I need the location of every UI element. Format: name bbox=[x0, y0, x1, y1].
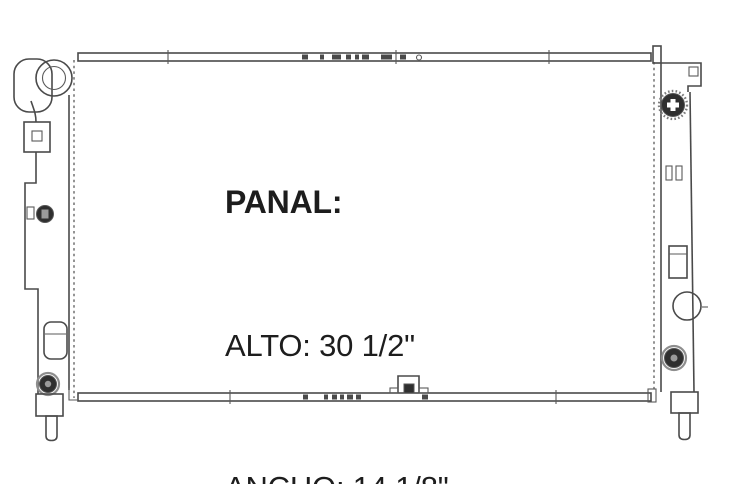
left-side-outline bbox=[25, 152, 38, 394]
spec-heading: PANAL: bbox=[225, 179, 491, 227]
overflow-fitting bbox=[669, 246, 687, 278]
spec-line-ancho: ANCHO: 14 1/8" bbox=[225, 464, 491, 484]
vent-slots bbox=[666, 166, 682, 180]
lower-bolt-left bbox=[37, 373, 59, 395]
spec-panel: PANAL: ALTO: 30 1/2" ANCHO: 14 1/8" GRUE… bbox=[225, 84, 491, 484]
side-slot bbox=[44, 322, 67, 359]
radiator-cap bbox=[659, 91, 687, 119]
inlet-pipe bbox=[14, 59, 72, 122]
drain-plug-left bbox=[36, 388, 78, 441]
upper-mounting-bracket bbox=[24, 122, 50, 152]
spec-line-alto: ALTO: 30 1/2" bbox=[225, 322, 491, 370]
top-header-plate bbox=[78, 50, 651, 64]
top-header-marks bbox=[302, 55, 422, 61]
outlet-pipe bbox=[673, 292, 708, 320]
radiator-spec-sheet: PANAL: ALTO: 30 1/2" ANCHO: 14 1/8" GRUE… bbox=[0, 0, 732, 484]
side-bracket-bolt bbox=[27, 206, 54, 223]
drain-plug-right bbox=[648, 389, 698, 440]
lower-bolt-right bbox=[662, 346, 686, 370]
